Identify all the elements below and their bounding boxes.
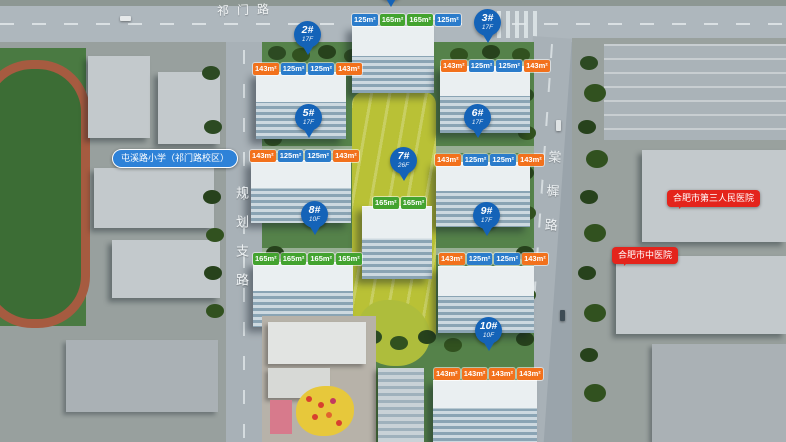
- building-floors: 26F: [391, 162, 416, 170]
- unit-area-label: 125m²: [281, 63, 307, 75]
- building-floors: 10F: [476, 332, 501, 340]
- building-floors: 17F: [295, 36, 320, 44]
- unit-area-label: 125m²: [435, 14, 461, 26]
- building-pin-5[interactable]: 5#17F: [295, 104, 322, 131]
- unit-area-label: 143m²: [462, 368, 488, 380]
- unit-area-label: 143m²: [435, 154, 461, 166]
- unit-area-label: 165m²: [373, 197, 399, 209]
- unit-area-row-6#: 143m²125m²125m²143m²: [435, 154, 544, 166]
- unit-area-label: 143m²: [434, 368, 460, 380]
- poi-label-hospital-third-peoples[interactable]: 合肥市第三人民医院: [667, 190, 760, 207]
- building-number: 6#: [465, 104, 490, 119]
- unit-area-row-2#: 143m²125m²125m²143m²: [253, 63, 362, 75]
- building-number: 5#: [296, 104, 321, 119]
- aerial-site-plan: 祁门路 规划支路 棠樨路 屯溪路小学（祁门路校区） 合肥市第三人民医院 合肥市中…: [0, 0, 786, 442]
- parking-lot: [604, 44, 786, 140]
- unit-area-label: 143m²: [441, 60, 467, 72]
- unit-area-label: 143m²: [489, 368, 515, 380]
- unit-area-row-10#: 143m²143m²143m²143m²: [434, 368, 543, 380]
- school-building: [88, 56, 150, 138]
- poi-label-school[interactable]: 屯溪路小学（祁门路校区）: [112, 149, 238, 168]
- building-10: [433, 380, 537, 442]
- unit-area-label: 143m²: [522, 253, 548, 265]
- unit-area-label: 125m²: [496, 60, 522, 72]
- kindergarten-annex: [270, 400, 292, 434]
- unit-area-label: 143m²: [439, 253, 465, 265]
- building-floors: 10F: [302, 216, 327, 224]
- unit-area-label: 165m²: [336, 253, 362, 265]
- unit-area-label: 143m²: [518, 154, 544, 166]
- car: [120, 16, 131, 21]
- building-pin-10[interactable]: 10#10F: [475, 317, 502, 344]
- building-pin-3[interactable]: 3#17F: [474, 9, 501, 36]
- car: [560, 310, 565, 321]
- unit-area-label: 125m²: [278, 150, 304, 162]
- playground-equipment: [306, 396, 312, 402]
- unit-area-label: 125m²: [305, 150, 331, 162]
- building-floors: 17F: [474, 217, 499, 225]
- building-pin-7[interactable]: 7#26F: [390, 147, 417, 174]
- building-number: 10#: [476, 317, 501, 332]
- unit-area-label: 165m²: [253, 253, 279, 265]
- building-pin-8[interactable]: 8#10F: [301, 201, 328, 228]
- building-pin-6[interactable]: 6#17F: [464, 104, 491, 131]
- unit-area-label: 165m²: [281, 253, 307, 265]
- car: [556, 120, 561, 131]
- kindergarten-roof: [268, 322, 366, 364]
- unit-area-label: 143m²: [524, 60, 550, 72]
- unit-area-row-5#: 143m²125m²125m²143m²: [250, 150, 359, 162]
- building-number: 7#: [391, 147, 416, 162]
- building-7: [362, 206, 432, 279]
- unit-area-label: 143m²: [333, 150, 359, 162]
- building-pin-9[interactable]: 9#17F: [473, 202, 500, 229]
- unit-area-label: 143m²: [253, 63, 279, 75]
- unit-area-label: 125m²: [308, 63, 334, 75]
- road-name-left: 规划支路: [232, 186, 251, 302]
- unit-area-row-4#: 125m²165m²165m²125m²: [352, 14, 461, 26]
- tree-cluster: [204, 120, 222, 134]
- building-pin-2[interactable]: 2#17F: [294, 21, 321, 48]
- unit-area-row-3#: 143m²125m²125m²143m²: [441, 60, 550, 72]
- unit-area-row-7#: 165m²165m²: [373, 197, 426, 209]
- building-number: 9#: [474, 202, 499, 217]
- unit-area-label: 165m²: [380, 14, 406, 26]
- unit-area-label: 125m²: [352, 14, 378, 26]
- unit-area-label: 143m²: [250, 150, 276, 162]
- poi-label-hospital-tcm[interactable]: 合肥市中医院: [612, 247, 678, 264]
- neighboring-building: [66, 340, 218, 412]
- unit-area-label: 125m²: [469, 60, 495, 72]
- road-name-top: 祁门路: [217, 0, 278, 19]
- building-number: 3#: [475, 9, 500, 24]
- building-4: [352, 26, 434, 93]
- unit-area-label: 125m²: [467, 253, 493, 265]
- unit-area-row-9#: 143m²125m²125m²143m²: [439, 253, 548, 265]
- unit-area-label: 143m²: [336, 63, 362, 75]
- running-track: [0, 60, 90, 328]
- building-number: 2#: [295, 21, 320, 36]
- tree-cluster: [202, 66, 220, 80]
- unit-area-label: 165m²: [401, 197, 427, 209]
- building-floors: 17F: [296, 119, 321, 127]
- playground: [296, 386, 354, 436]
- building-number: 8#: [302, 201, 327, 216]
- unit-area-label: 125m²: [463, 154, 489, 166]
- school-building: [112, 240, 220, 298]
- hospital-building: [652, 344, 786, 442]
- hospital-building: [616, 256, 786, 334]
- unit-area-label: 165m²: [308, 253, 334, 265]
- unit-area-label: 125m²: [490, 154, 516, 166]
- tree-cluster: [580, 56, 598, 70]
- building-floors: 17F: [475, 24, 500, 32]
- unit-area-label: 165m²: [407, 14, 433, 26]
- crosswalk: [497, 11, 541, 38]
- school-building: [94, 168, 214, 228]
- unit-area-label: 125m²: [494, 253, 520, 265]
- unit-area-label: 143m²: [517, 368, 543, 380]
- building-floors: 17F: [465, 119, 490, 127]
- tree-cluster: [268, 46, 286, 60]
- unit-area-row-8#: 165m²165m²165m²165m²: [253, 253, 362, 265]
- low-rise-building: [378, 368, 424, 442]
